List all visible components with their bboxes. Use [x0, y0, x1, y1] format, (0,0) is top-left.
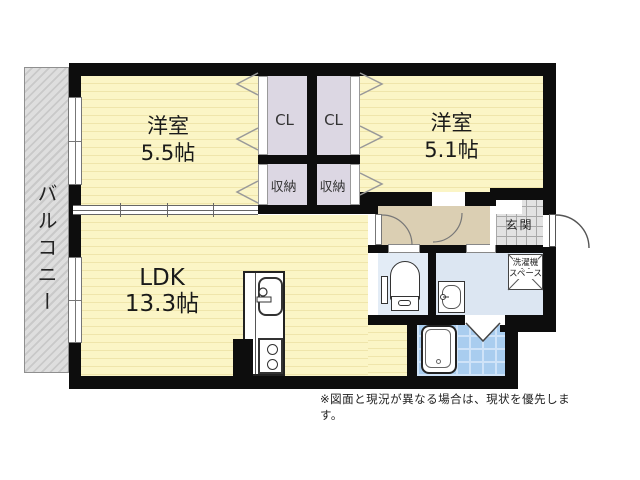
window-icon	[68, 97, 82, 185]
wall-closet-mid	[258, 155, 360, 164]
partition-tick	[167, 203, 168, 217]
washbasin-bowl	[442, 285, 461, 309]
bathtub-drain	[436, 359, 441, 364]
burner-icon	[267, 359, 278, 370]
laundry-space-label: 洗濯機 スペース	[506, 258, 545, 280]
washroom-door	[466, 244, 496, 253]
room1-size: 5.5帖	[81, 140, 255, 167]
room2-size: 5.1帖	[360, 137, 543, 164]
window-icon	[68, 257, 82, 343]
balcony-label: バルコニー	[24, 150, 69, 350]
stove-icon	[258, 338, 283, 374]
room2-doorway	[432, 192, 465, 206]
entrance-label: 玄関	[496, 216, 543, 233]
washbasin-icon	[438, 281, 465, 313]
kitchen-counter-edge	[255, 273, 256, 374]
room2-name: 洋室	[360, 110, 543, 137]
ldk-door-leaf	[375, 214, 382, 245]
burner-icon	[267, 344, 278, 355]
partition-tick	[213, 203, 214, 217]
window-mullion	[69, 141, 81, 142]
floor-plan: バルコニー 洋室 5.5帖 洋室 5.1帖 LDK 13.3帖 CL CL 収納…	[0, 0, 640, 480]
wall-toilet-washroom	[428, 253, 436, 315]
ldk-name: LDK	[81, 265, 243, 291]
wall-kitchen-stub	[233, 339, 253, 376]
toilet-paper-holder	[381, 276, 388, 304]
bathtub-icon	[421, 325, 457, 374]
bath-doorway	[465, 315, 505, 325]
wall-bath-left	[407, 325, 417, 388]
wall-washroom-bottom	[368, 315, 556, 325]
closet-left-label: CL	[262, 111, 307, 129]
laundry-line2: スペース	[506, 269, 545, 280]
laundry-line1: 洗濯機	[506, 258, 545, 269]
entrance-door-leaf	[549, 214, 556, 247]
room2-label: 洋室 5.1帖	[360, 110, 543, 164]
toilet-tank	[391, 296, 419, 311]
room1-label: 洋室 5.5帖	[81, 113, 255, 167]
closet-right-label: CL	[315, 111, 352, 129]
wall-bath-right	[505, 318, 518, 389]
room1-name: 洋室	[81, 113, 255, 140]
window-mullion	[69, 300, 81, 301]
toilet-icon	[390, 261, 420, 301]
hallway-floor	[378, 206, 490, 245]
wall-bottom	[69, 376, 518, 389]
ldk-size: 13.3帖	[81, 291, 243, 317]
storage-left-label: 収納	[260, 176, 307, 195]
entrance-step-corner	[496, 200, 522, 214]
kitchen-sink-icon	[258, 277, 283, 316]
disclaimer-note: ※図面と現況が異なる場合は、現状を優先します。	[320, 391, 592, 423]
partition-tick	[120, 203, 121, 217]
ldk-label: LDK 13.3帖	[81, 265, 243, 317]
partition-center-line	[73, 210, 258, 211]
toilet-door	[388, 244, 420, 253]
storage-right-label: 収納	[313, 176, 352, 195]
sliding-partition	[73, 205, 258, 215]
wall-under-closets	[250, 205, 378, 214]
toilet-flush-handle	[398, 300, 411, 306]
wall-entrance-top	[490, 188, 556, 200]
entrance-door-arc	[556, 215, 589, 248]
ldk-floor-extension	[368, 325, 407, 376]
